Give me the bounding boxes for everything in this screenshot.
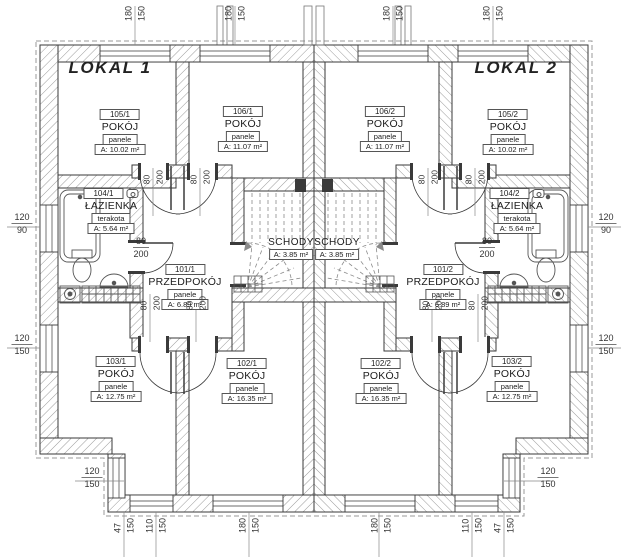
room-label-106-1: 106/1POKÓJpaneleA: 11.07 m² <box>218 106 268 152</box>
dim-value: 200 <box>133 248 149 259</box>
dim-value: 120 <box>595 333 616 345</box>
room-area: A: 16.35 m² <box>356 393 407 404</box>
room-name: POKÓJ <box>225 118 262 130</box>
dim-value: 150 <box>11 345 32 356</box>
dim-value: 200 <box>479 248 495 259</box>
dim-value: 90 <box>11 224 32 235</box>
stairs-label-schody-2: SCHODYA: 3.85 m² <box>314 237 360 260</box>
dim-value: 80 <box>133 236 149 248</box>
room-name: POKÓJ <box>102 121 139 133</box>
room-number: 106/2 <box>365 106 405 117</box>
room-name: POKÓJ <box>367 118 404 130</box>
door_dimension-d7: 80200 <box>417 170 440 184</box>
dim-value: 180 <box>124 6 134 21</box>
unit-title-lokal-2: LOKAL 2 <box>475 58 558 78</box>
room-area: A: 12.75 m² <box>487 391 538 402</box>
room-name: POKÓJ <box>98 368 135 380</box>
room-area: A: 10.02 m² <box>95 144 146 155</box>
dim-value: 150 <box>474 518 484 533</box>
toilet-tank <box>72 250 92 258</box>
room-area: A: 11.07 m² <box>218 141 268 152</box>
dim-value: 180 <box>224 6 234 21</box>
dimension-r2: 120150 <box>595 333 616 356</box>
floor-plan: LOKAL 1LOKAL 2105/1POKÓJpaneleA: 10.02 m… <box>0 0 628 559</box>
dim-value: 150 <box>81 478 102 489</box>
room-number: 106/1 <box>223 106 263 117</box>
dimension-b3: 180150 <box>238 518 261 533</box>
unit-title-lokal-1: LOKAL 1 <box>69 58 152 78</box>
stairs-area: A: 3.85 m² <box>315 249 360 260</box>
room-number-row: 105/2 <box>488 109 528 120</box>
dim-value: 200 <box>477 170 487 184</box>
room-name: ŁAZIENKA <box>85 200 137 212</box>
dimension-b5: 110150 <box>461 518 484 533</box>
flue-block <box>295 179 306 192</box>
dim-value: 150 <box>158 518 168 533</box>
door_dimension-d6: 80200 <box>464 170 487 184</box>
dim-value: 150 <box>506 518 516 533</box>
room-number: 105/1 <box>100 109 140 120</box>
wc-dot <box>131 192 136 197</box>
room-label-104-1: 104/1ŁAZIENKAterakotaA: 5.64 m² <box>83 188 138 234</box>
dimension-t1: 180150 <box>124 6 147 21</box>
room-number-row: 106/2 <box>365 106 405 117</box>
room-name: POKÓJ <box>490 121 527 133</box>
dimension-t3: 180150 <box>382 6 405 21</box>
room-label-102-1: 102/1POKÓJpaneleA: 16.35 m² <box>222 358 273 404</box>
room-name: PRZEDPOKÓJ <box>148 276 221 288</box>
room-number: 102/2 <box>361 358 401 369</box>
dimension-t2: 180150 <box>224 6 247 21</box>
stairs-label-schody-1: SCHODYA: 3.85 m² <box>268 237 314 260</box>
dim-value: 150 <box>237 6 247 21</box>
room-name: POKÓJ <box>494 368 531 380</box>
dim-value: 80 <box>189 170 199 184</box>
room-number: 103/1 <box>96 356 136 367</box>
dimension-cl: 120150 <box>81 466 102 489</box>
wc-dot <box>537 192 542 197</box>
dim-value: 180 <box>382 6 392 21</box>
door_dimension-d8: 80200 <box>467 296 490 310</box>
dim-value: 200 <box>430 170 440 184</box>
dim-value: 150 <box>383 518 393 533</box>
room-label-103-1: 103/1POKÓJpaneleA: 12.75 m² <box>91 356 142 402</box>
room-name: POKÓJ <box>363 370 400 382</box>
dim-value: 90 <box>595 224 616 235</box>
dimension-b1: 47150 <box>113 518 136 533</box>
room-name: ŁAZIENKA <box>491 200 543 212</box>
door_dimension-d5: 80200 <box>133 236 149 259</box>
dim-value: 200 <box>434 296 444 310</box>
room-label-103-2: 103/2POKÓJpaneleA: 12.75 m² <box>487 356 538 402</box>
dim-value: 47 <box>493 518 503 533</box>
door_dimension-d2: 80200 <box>189 170 212 184</box>
dimension-t4: 180150 <box>482 6 505 21</box>
room-number-row: 105/1 <box>100 109 140 120</box>
dim-value: 180 <box>482 6 492 21</box>
room-label-105-1: 105/1POKÓJpaneleA: 10.02 m² <box>95 109 146 155</box>
dim-value: 150 <box>126 518 136 533</box>
room-area: A: 16.35 m² <box>222 393 273 404</box>
room-number: 103/2 <box>492 356 532 367</box>
dim-value: 120 <box>81 466 102 478</box>
dim-value: 200 <box>480 296 490 310</box>
stairs-area: A: 3.85 m² <box>269 249 314 260</box>
wc-icon <box>127 189 139 198</box>
dim-value: 120 <box>537 466 558 478</box>
dim-value: 80 <box>479 236 495 248</box>
room-number-row: 101/2 <box>423 264 463 275</box>
room-area: A: 10.02 m² <box>483 144 534 155</box>
room-number-row: 103/2 <box>492 356 532 367</box>
room-number: 101/2 <box>423 264 463 275</box>
room-label-105-2: 105/2POKÓJpaneleA: 10.02 m² <box>483 109 534 155</box>
room-label-106-2: 106/2POKÓJpaneleA: 11.07 m² <box>360 106 410 152</box>
room-number: 102/1 <box>227 358 267 369</box>
dim-value: 120 <box>11 212 32 224</box>
dim-value: 200 <box>155 170 165 184</box>
dim-value: 180 <box>238 518 248 533</box>
dim-value: 47 <box>113 518 123 533</box>
room-name: PRZEDPOKÓJ <box>406 276 479 288</box>
room-number: 104/1 <box>83 188 123 199</box>
dim-value: 80 <box>421 296 431 310</box>
dim-value: 110 <box>145 518 155 533</box>
room-number-row: 101/1 <box>165 264 205 275</box>
room-area: A: 5.64 m² <box>88 223 135 234</box>
dim-value: 150 <box>495 6 505 21</box>
door_dimension-d1: 80200 <box>142 170 165 184</box>
dim-value: 180 <box>370 518 380 533</box>
dim-value: 200 <box>202 170 212 184</box>
dimension-l1: 12090 <box>11 212 32 235</box>
dim-value: 80 <box>142 170 152 184</box>
wc-icon <box>533 189 545 198</box>
room-number-row: 102/2 <box>361 358 401 369</box>
room-number-row: 103/1 <box>96 356 136 367</box>
room-area: A: 5.64 m² <box>494 223 541 234</box>
dim-value: 80 <box>185 296 195 310</box>
dimension-b6: 47150 <box>493 518 516 533</box>
room-number-row: 104/2 <box>489 188 544 199</box>
room-number: 101/1 <box>165 264 205 275</box>
dim-value: 80 <box>464 170 474 184</box>
dimension-l2: 120150 <box>11 333 32 356</box>
dim-value: 80 <box>467 296 477 310</box>
room-number-row: 102/1 <box>227 358 267 369</box>
room-number: 104/2 <box>489 188 529 199</box>
door_dimension-d3: 80200 <box>139 296 162 310</box>
dim-value: 110 <box>461 518 471 533</box>
dimension-r1: 12090 <box>595 212 616 235</box>
dim-value: 120 <box>11 333 32 345</box>
room-number: 105/2 <box>488 109 528 120</box>
dim-value: 120 <box>595 212 616 224</box>
room-label-102-2: 102/2POKÓJpaneleA: 16.35 m² <box>356 358 407 404</box>
dimension-cr: 120150 <box>537 466 558 489</box>
dim-value: 150 <box>137 6 147 21</box>
dimension-b4: 180150 <box>370 518 393 533</box>
dim-value: 200 <box>198 296 208 310</box>
dimension-b2: 110150 <box>145 518 168 533</box>
dim-value: 150 <box>251 518 261 533</box>
dim-value: 150 <box>595 345 616 356</box>
room-label-104-2: 104/2ŁAZIENKAterakotaA: 5.64 m² <box>489 188 544 234</box>
stairs-name: SCHODY <box>314 237 360 248</box>
room-number-row: 104/1 <box>83 188 138 199</box>
dim-value: 150 <box>395 6 405 21</box>
room-area: A: 12.75 m² <box>91 391 142 402</box>
dim-value: 200 <box>152 296 162 310</box>
door_dimension-d10: 80200 <box>479 236 495 259</box>
room-area: A: 11.07 m² <box>360 141 410 152</box>
dim-value: 80 <box>417 170 427 184</box>
dim-value: 150 <box>537 478 558 489</box>
room-number-row: 106/1 <box>223 106 263 117</box>
room-name: POKÓJ <box>229 370 266 382</box>
dim-value: 80 <box>139 296 149 310</box>
stairs-name: SCHODY <box>268 237 314 248</box>
door_dimension-d9: 80200 <box>421 296 444 310</box>
door_dimension-d4: 80200 <box>185 296 208 310</box>
